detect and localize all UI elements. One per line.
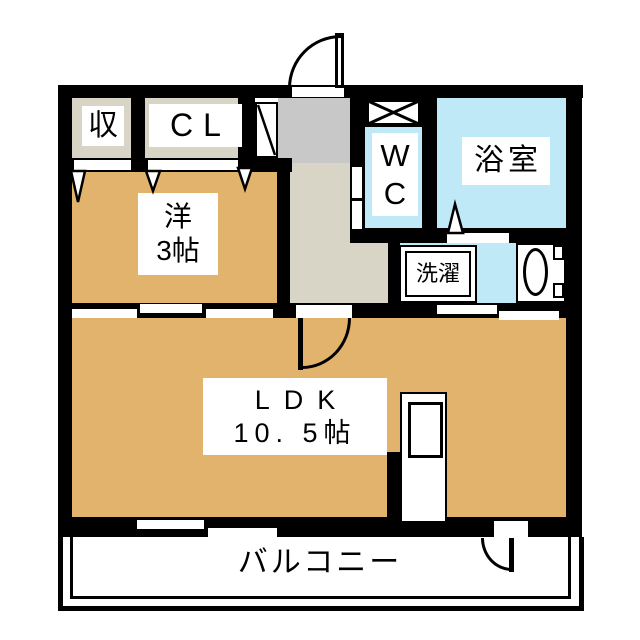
storage-room-label: 収 [82,106,124,146]
wc-door-panel-lower [352,201,362,229]
ldk-door-opening [296,305,352,318]
washbasin-bowl [523,248,548,296]
slide-door-tick [202,303,206,318]
bathroom-door-opening [447,233,509,243]
wall-storage-divider [131,98,145,160]
laundry-label-text: 洗濯 [416,261,460,288]
wall-western-room-right [277,158,290,318]
wc-label-line2: C [384,175,406,213]
laundry-label: 洗濯 [405,251,471,297]
closet-room-label-text: CL [170,106,231,145]
balcony-window-panel-1 [137,520,205,529]
ldk-name: LDK [241,384,350,417]
wc-label-line1: W [380,137,409,175]
entrance-door-swing-arc [288,35,341,88]
wall-kitchen-stub [387,452,400,525]
wc-label: W C [372,133,418,216]
shoe-cabinet [255,102,278,158]
hallway-floor [290,163,350,303]
balcony-window-tick [204,517,208,537]
ldk-label: LDK 10. 5帖 [203,378,387,455]
closet-door-opening [148,160,238,170]
balcony-label: バルコニー [180,544,460,582]
western-room-slide-panel-2 [140,304,202,313]
pipe-shaft-box [365,98,422,127]
bathroom-label: 浴室 [462,137,550,185]
washbasin-shelf-top [553,245,564,260]
entry-genkan-floor [278,98,350,163]
washroom-slide-panel-1 [437,305,497,314]
entrance-door-opening [292,87,344,97]
western-room-size: 3帖 [156,234,200,268]
western-room-slide-panel-1 [72,309,137,318]
western-room-name: 洋 [164,200,192,234]
balcony-label-text: バルコニー [238,545,402,582]
floor-plan: 収 CL 洋 3帖 W C 浴室 洗濯 LDK 10. 5帖 バルコニー [0,0,640,640]
balcony-window-panel-2 [208,528,277,537]
wall-right [566,85,582,537]
washroom-slide-panel-2 [499,311,559,320]
ldk-size: 10. 5帖 [233,417,356,450]
wc-door-panel-upper [352,167,362,198]
wall-wc-bottom [365,228,437,243]
closet-room-label: CL [149,104,242,147]
balcony-door-opening [494,521,528,537]
western-room-label: 洋 3帖 [138,193,218,275]
kitchen-sink [408,402,443,458]
bathroom-label-text: 浴室 [474,143,542,180]
wall-wc-right [422,98,437,243]
western-room-slide-panel-3 [205,309,273,318]
washbasin-shelf-bottom [553,283,564,298]
storage-door-opening [74,160,131,170]
hallway-floor-lower [350,243,388,303]
storage-room-label-text: 収 [88,108,118,145]
